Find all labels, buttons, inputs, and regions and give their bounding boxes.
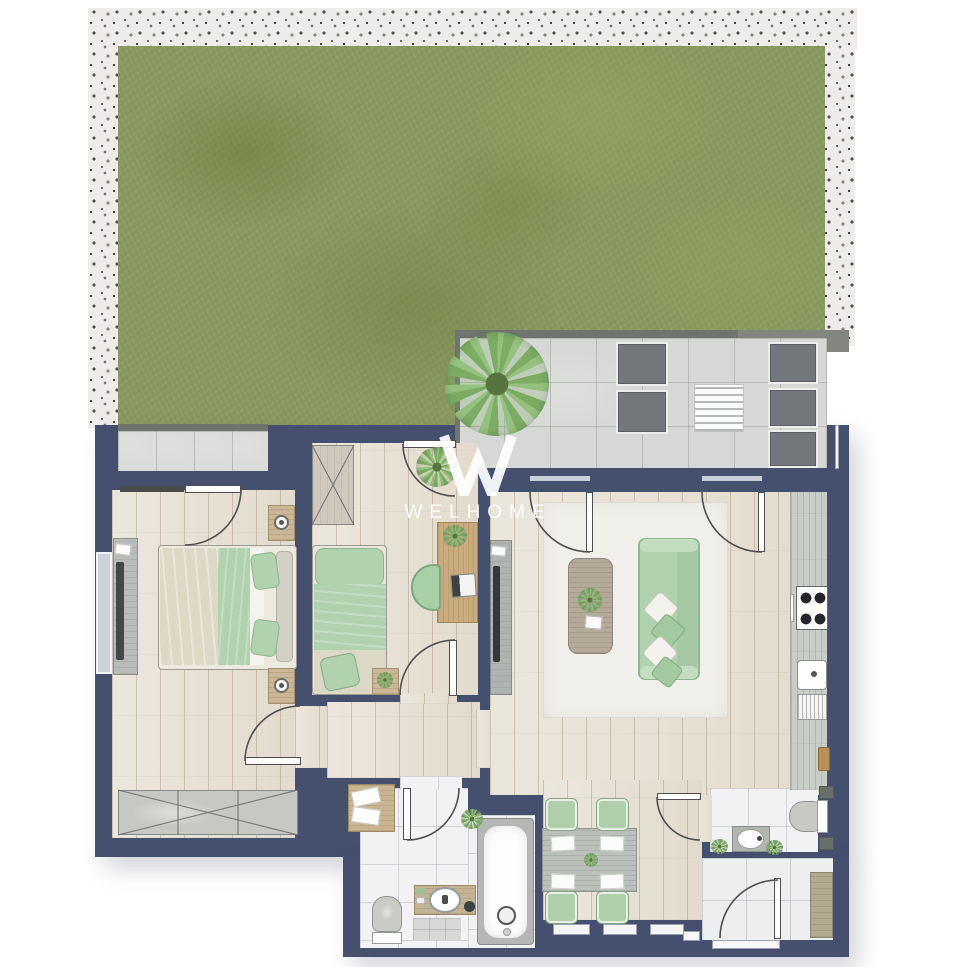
wc-vent-2 xyxy=(819,837,834,850)
entrance-threshold xyxy=(712,940,780,949)
sofa-armrest-top xyxy=(640,539,698,552)
dining-window-1 xyxy=(553,924,590,935)
dish-drainer xyxy=(797,694,827,720)
bathroom-plant xyxy=(461,809,483,829)
bathtub-faucet xyxy=(497,906,516,925)
placemat-1 xyxy=(551,835,576,851)
outdoor-sofa-seat-3 xyxy=(768,430,818,468)
vanity-soap xyxy=(416,888,425,895)
living-terrace-door-leaf-left xyxy=(586,492,593,552)
coffee-table-plant xyxy=(578,588,602,612)
bathtub-drain xyxy=(503,928,511,936)
entrance-door-leaf xyxy=(774,878,781,939)
dining-window-3 xyxy=(650,924,684,935)
vanity-faucet xyxy=(442,895,448,904)
gas-hob xyxy=(796,586,828,630)
placemat-4 xyxy=(600,874,625,890)
bathroom-toilet-tank xyxy=(372,932,402,944)
hall-vent xyxy=(683,931,700,941)
dresser-tv xyxy=(116,562,124,660)
tv-screen xyxy=(493,566,500,662)
double-bed-back-pillows xyxy=(276,551,293,662)
nightstand-lamp-2 xyxy=(274,678,289,693)
placemat-3 xyxy=(551,874,576,890)
welhome-logo-icon xyxy=(439,434,517,496)
living-terrace-glass-right xyxy=(702,476,762,481)
living-terrace-door-leaf-right xyxy=(758,492,765,552)
kitchen-counter xyxy=(790,492,827,790)
placemat-2 xyxy=(600,836,625,852)
double-bed-pillow-green-1 xyxy=(250,551,281,590)
single-bed-blanket xyxy=(314,584,386,652)
patio-floor xyxy=(118,431,268,471)
outdoor-sofa-seat-2 xyxy=(768,388,818,428)
dining-chair-2 xyxy=(597,799,628,830)
entrance-cabinet xyxy=(810,872,833,938)
watermark-brand-text: WELHOME xyxy=(378,502,578,524)
watermark: WELHOME xyxy=(378,432,578,528)
bedroom1-terrace-door-pane xyxy=(120,486,184,492)
desk-plant xyxy=(443,525,467,547)
bedroom1-terrace-door-leaf xyxy=(185,485,241,493)
vanity-bottle xyxy=(416,897,425,904)
double-bed-blanket-beige xyxy=(160,548,218,665)
patio-edge xyxy=(118,424,268,431)
gravel-border-top xyxy=(88,8,857,50)
wc-toilet-bowl xyxy=(789,801,819,832)
nightstand-lamp-1 xyxy=(274,515,289,530)
bath-mat xyxy=(413,918,461,940)
floor-plan-canvas: WELHOME xyxy=(0,0,967,967)
gravel-border-right xyxy=(823,8,855,346)
bedroom1-wardrobe xyxy=(118,790,298,835)
dining-chair-4 xyxy=(597,892,628,923)
terrace-railing xyxy=(835,425,839,469)
console-book xyxy=(491,545,507,557)
double-bed-pillow-green-2 xyxy=(250,618,281,657)
lounge-chair-2 xyxy=(616,390,668,434)
outdoor-slatted-table xyxy=(694,384,744,432)
hob-handle xyxy=(790,594,794,622)
bedroom1-window xyxy=(96,552,112,674)
single-bed-pillow xyxy=(315,548,384,586)
lounge-chair-1 xyxy=(616,342,668,386)
dresser-book xyxy=(114,543,131,556)
wc-corridor-door-leaf xyxy=(657,793,701,800)
wc-toilet-tank xyxy=(817,800,828,833)
wc-faucet xyxy=(757,836,762,841)
double-bed-blanket-green xyxy=(218,548,250,665)
wc-plant-1 xyxy=(711,839,728,854)
dining-window-2 xyxy=(603,924,637,935)
bathroom-bin xyxy=(464,901,475,912)
bedroom2-door-leaf xyxy=(449,640,457,696)
bathroom-toilet-bowl xyxy=(372,896,402,932)
cutting-board xyxy=(818,747,830,771)
bedroom2-wardrobe xyxy=(312,445,354,525)
wc-corridor-door-opening xyxy=(698,795,712,842)
dining-chair-1 xyxy=(546,799,577,830)
dining-center-plant xyxy=(584,853,598,867)
gravel-border-left xyxy=(88,8,120,428)
wc-plant-2 xyxy=(766,840,783,855)
bedroom1-door-leaf xyxy=(245,757,301,765)
bedside-plant xyxy=(377,672,393,688)
wc-vent-1 xyxy=(819,786,834,799)
palm-plant xyxy=(445,332,549,436)
outdoor-sofa-seat-1 xyxy=(768,342,818,384)
sink-faucet xyxy=(811,671,817,677)
laptop xyxy=(450,573,477,598)
sofa-backrest xyxy=(677,542,697,676)
coffee-table-tray xyxy=(584,615,602,629)
dining-chair-3 xyxy=(546,892,577,923)
hallway-floor xyxy=(327,702,480,778)
bathroom-door-leaf xyxy=(403,788,411,840)
